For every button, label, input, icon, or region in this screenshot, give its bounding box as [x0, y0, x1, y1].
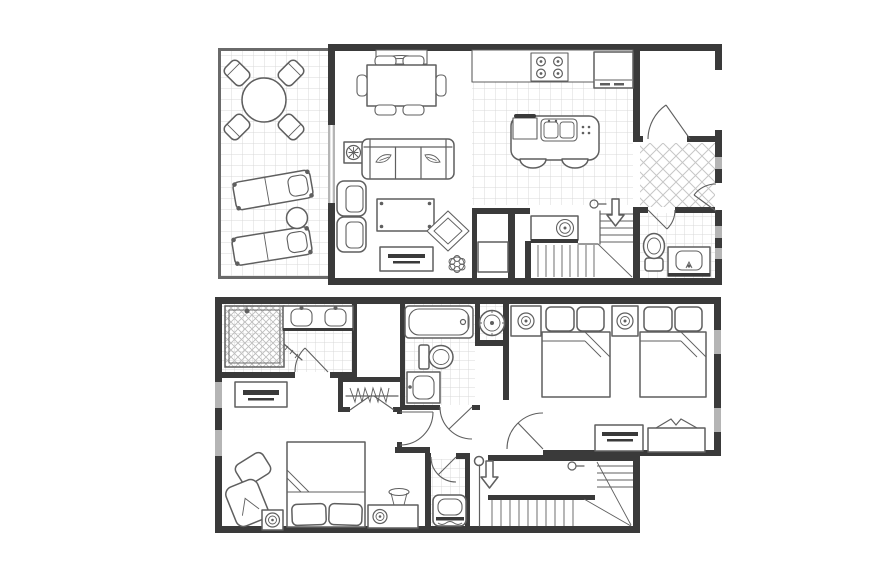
sliding-door-track [333, 125, 335, 203]
pillow [644, 307, 672, 331]
tv-console [595, 425, 643, 451]
foyer-tile-floor [640, 143, 715, 207]
down-arrow [481, 461, 498, 488]
shower-head [245, 309, 250, 314]
cooktop [531, 53, 568, 81]
dining-chair [357, 75, 367, 96]
faucet [300, 306, 304, 310]
nightstand-with-lamp [511, 306, 541, 336]
table-lamp-shade [389, 489, 409, 496]
pillow [675, 307, 702, 331]
dining-chair [436, 75, 446, 96]
faucet [408, 385, 412, 389]
crib-bench [433, 495, 466, 526]
floor-plan-canvas: Two-level suite floor plan [0, 0, 876, 584]
toilet [644, 234, 665, 272]
round-patio-table [242, 78, 286, 122]
bedroom-2 [507, 306, 706, 452]
utility-unit [478, 242, 508, 272]
upper-floor [218, 44, 722, 285]
coffee-table [377, 199, 434, 231]
dining-chair [375, 105, 396, 115]
walk-in-closet [346, 388, 398, 410]
bathtub [405, 306, 473, 338]
living-room [337, 50, 469, 273]
walk-in-shower [225, 306, 284, 367]
bed [287, 442, 365, 527]
vanity-sink [668, 247, 710, 277]
lower-stairs [475, 457, 634, 527]
hangers [350, 388, 389, 402]
railing-curl [568, 462, 584, 470]
floor-plant [449, 256, 465, 273]
tv-console [380, 247, 433, 271]
vanity-sink [407, 372, 440, 403]
patio-side-table [287, 208, 308, 229]
luggage-bench [648, 419, 705, 452]
refrigerator [594, 52, 633, 88]
double-bed [640, 307, 706, 397]
double-vanity [283, 306, 353, 331]
nightstand-with-lamp [262, 510, 283, 530]
double-bed [542, 307, 610, 397]
primary-bedroom-door [400, 412, 433, 445]
dining-table [367, 65, 436, 106]
armchair [337, 217, 366, 252]
toilet [419, 345, 453, 369]
pillow [577, 307, 604, 331]
dining-chair [403, 105, 424, 115]
desk-with-lamps [368, 489, 418, 529]
kitchen-island [511, 114, 599, 160]
sofa [362, 139, 454, 179]
lower-floor [215, 297, 721, 533]
closet-double-doors [350, 396, 394, 410]
dresser-with-tv [235, 382, 287, 407]
sink [291, 309, 312, 326]
bedroom2-door [507, 413, 543, 449]
nightstand-with-lamp [612, 306, 638, 336]
pillow [292, 503, 327, 525]
armchair [337, 181, 366, 216]
plant-side-table [344, 142, 363, 163]
sliding-door-track [328, 125, 330, 203]
bath2-door [440, 407, 472, 439]
faucet [334, 306, 338, 310]
newel-post [475, 457, 484, 466]
stair-steps [492, 462, 633, 526]
pillow [329, 503, 363, 525]
washer [557, 220, 574, 237]
sink [325, 309, 346, 326]
utility-alcove [480, 311, 505, 336]
pillow [546, 307, 574, 331]
storage-closet-door [648, 105, 690, 139]
floor-plan-drawing [0, 0, 876, 584]
island-sink [541, 119, 577, 141]
